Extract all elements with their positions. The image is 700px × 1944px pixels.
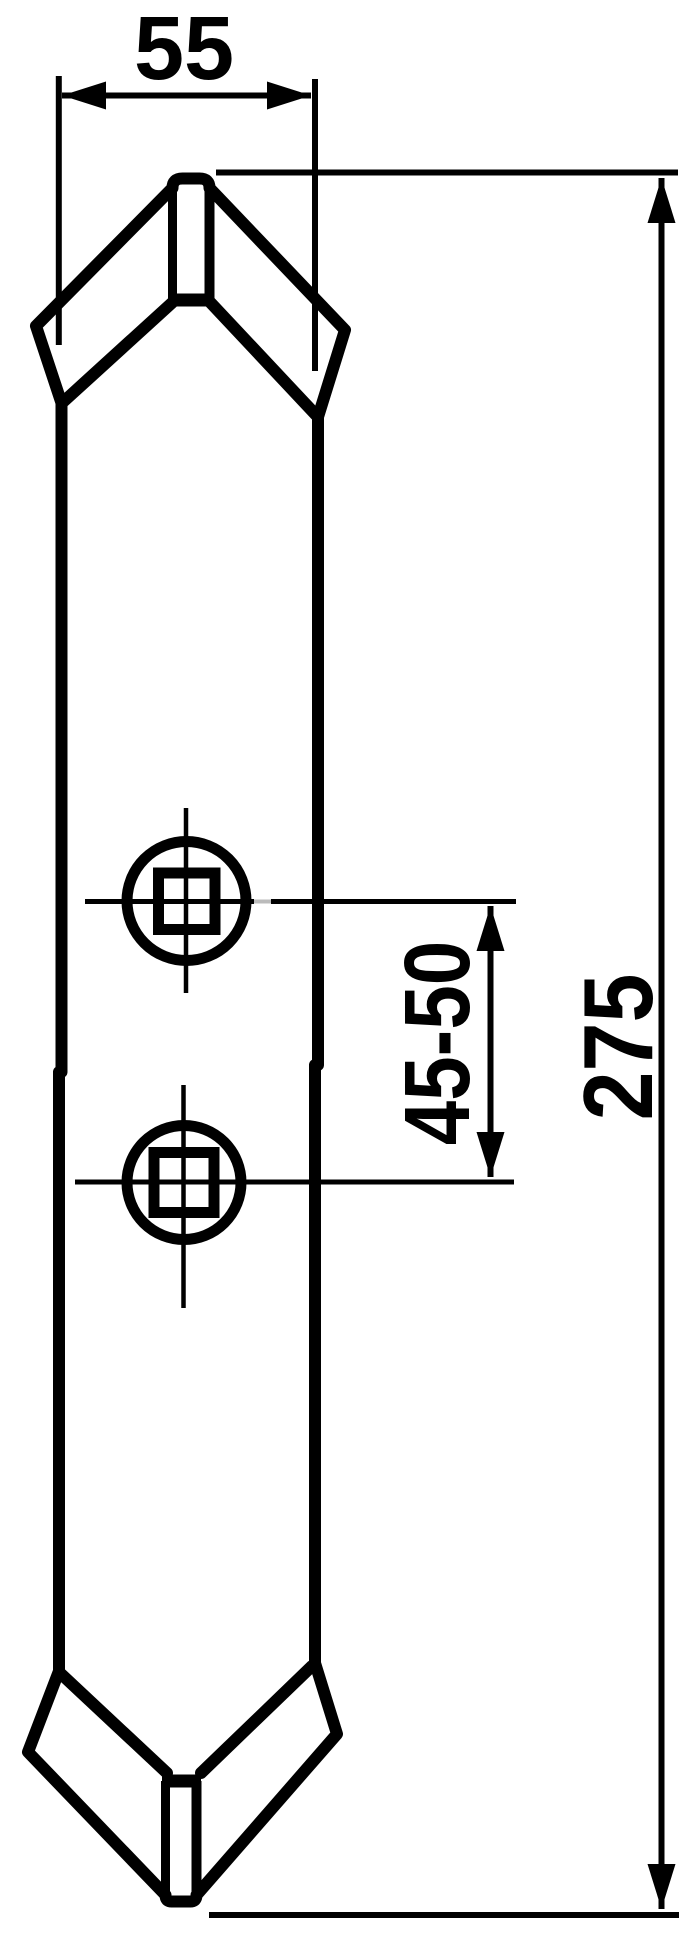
svg-text:275: 275 <box>562 974 673 1121</box>
svg-text:45-50: 45-50 <box>387 941 490 1146</box>
svg-text:55: 55 <box>134 0 234 99</box>
